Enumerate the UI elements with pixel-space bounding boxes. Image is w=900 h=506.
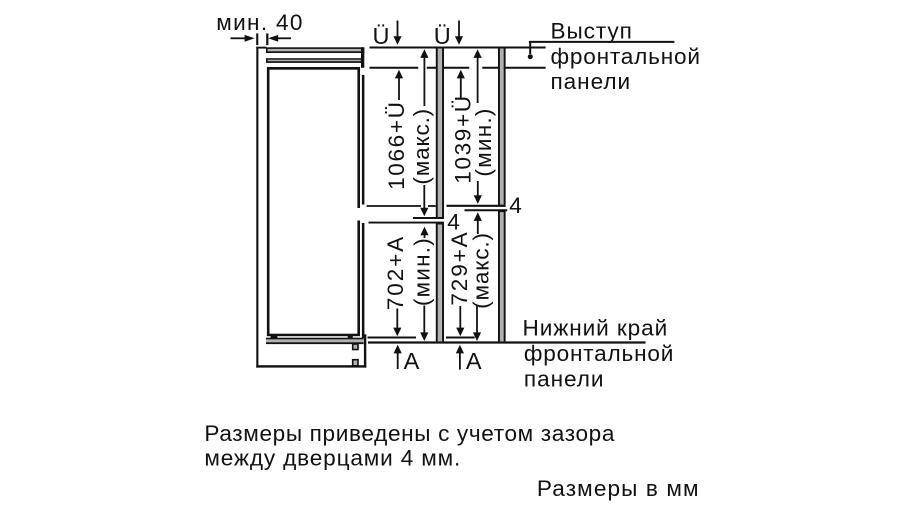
svg-text:Ü: Ü: [434, 23, 451, 49]
svg-text:(мин.): (мин.): [471, 107, 496, 176]
svg-text:панели: панели: [524, 366, 605, 391]
svg-text:панели: панели: [551, 69, 632, 94]
svg-text:702+A: 702+A: [383, 235, 408, 310]
svg-text:между дверцами 4 мм.: между дверцами 4 мм.: [204, 445, 461, 470]
svg-text:A: A: [466, 348, 482, 374]
svg-text:4: 4: [509, 193, 522, 218]
svg-text:Размеры в мм: Размеры в мм: [537, 476, 700, 501]
svg-text:Выступ: Выступ: [551, 19, 633, 44]
svg-text:(макс.): (макс.): [469, 232, 494, 309]
svg-text:фронтальной: фронтальной: [551, 44, 701, 69]
svg-text:фронтальной: фронтальной: [524, 341, 674, 366]
svg-text:Размеры приведены с учетом заз: Размеры приведены с учетом зазора: [204, 421, 615, 446]
svg-text:мин. 40: мин. 40: [216, 10, 303, 35]
svg-text:Ü: Ü: [373, 23, 390, 49]
svg-text:Нижний край: Нижний край: [523, 316, 669, 341]
svg-text:(макс.): (макс.): [409, 108, 434, 185]
svg-text:(мин.): (мин.): [409, 237, 434, 306]
svg-text:A: A: [404, 348, 420, 374]
svg-text:1066+Ü: 1066+Ü: [384, 101, 409, 190]
